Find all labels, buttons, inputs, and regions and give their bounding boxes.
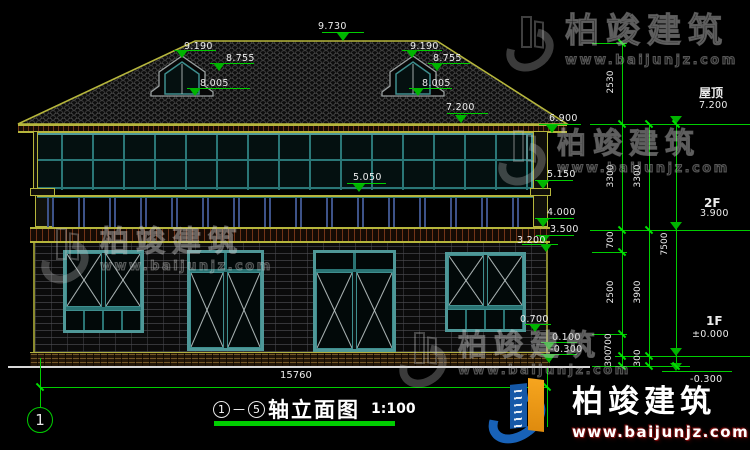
floor-label-2f: 2F [704,196,721,210]
dimension-line [40,387,547,388]
axis-number: 1 [35,411,45,429]
title-text: 轴立面图 [268,394,360,424]
dimension-text: 700 [606,218,618,262]
elevation-marker-triangle [537,219,549,227]
dimension-line [649,124,650,366]
elevation-value: 7.200 [446,102,475,113]
title-axis-from-circle: 1 [213,401,230,418]
dimension-text: 3300 [606,154,618,198]
dimension-line [676,124,677,366]
floor-label-1f: 1F [706,314,723,328]
elevation-value: 3.500 [550,224,579,235]
elevation-marker-line [447,113,488,114]
elevation-value: 5.050 [353,172,382,183]
elevation-value: 8.005 [422,78,451,89]
elevation-value: 0.700 [520,314,549,325]
floor-label-roof: 屋顶 [699,84,723,101]
brand-site: www.baijunjz.com [572,423,749,441]
title-dash: — [233,402,245,416]
overall-width-dimension: 15760 [280,370,312,381]
elevation-marker-triangle [455,115,467,123]
elevation-drawing: 9.7309.1908.7558.0059.1908.7558.0057.200… [0,0,750,450]
dimension-text: 300 [604,336,616,380]
elevation-value: 4.000 [547,207,576,218]
dimension-line [622,43,623,366]
elevation-value: 5.150 [547,169,576,180]
elevation-marker-line [662,371,732,372]
elevation-marker-triangle [670,348,682,356]
elevation-value: 9.730 [318,21,347,32]
elevation-marker-triangle [431,63,443,71]
elevation-marker-triangle [337,33,349,41]
elevation-value: 8.755 [226,53,255,64]
elevation-marker-triangle [213,63,225,71]
elevation-marker-triangle [529,324,541,332]
elevation-marker-triangle [543,355,555,363]
elevation-value: 0.100 [552,332,581,343]
elevation-value: 6.900 [549,113,578,124]
elevation-value: 8.005 [200,78,229,89]
elevation-value: ±0.000 [692,329,729,340]
elevation-value: 3.200 [517,235,546,246]
dimension-line [40,358,41,407]
elevation-marker-triangle [189,88,201,96]
elevation-value: -0.300 [550,344,582,355]
drawing-title: 1 — 5 轴立面图 1:100 [213,394,416,424]
elevation-marker-triangle [537,181,549,189]
elevation-value: 7.200 [699,100,728,111]
title-axis-to-circle: 5 [248,401,265,418]
elevation-marker-line [655,356,748,357]
title-underline [214,421,395,426]
elevation-marker-triangle [546,125,558,133]
brand-logo: 柏竣建筑 www.baijunjz.com [486,376,749,448]
elevation-marker-line [650,124,748,125]
dimension-text: 2530 [606,60,618,104]
title-scale: 1:100 [371,401,416,417]
elevation-marker-triangle [353,184,365,192]
elevation-value: 8.755 [433,53,462,64]
brand-name: 柏竣建筑 [572,376,749,421]
elevation-value: 9.190 [184,41,213,52]
dimension-text: 300 [633,336,645,380]
axis-bubble-1: 1 [27,407,53,433]
elevation-marker-triangle [412,88,424,96]
brand-logo-icon [486,376,566,448]
dimension-text: 2500 [606,270,618,314]
dimension-text: 3300 [633,154,645,198]
dimension-text: 3900 [633,270,645,314]
elevation-value: 9.190 [410,41,439,52]
dimension-text: 7500 [660,222,672,266]
